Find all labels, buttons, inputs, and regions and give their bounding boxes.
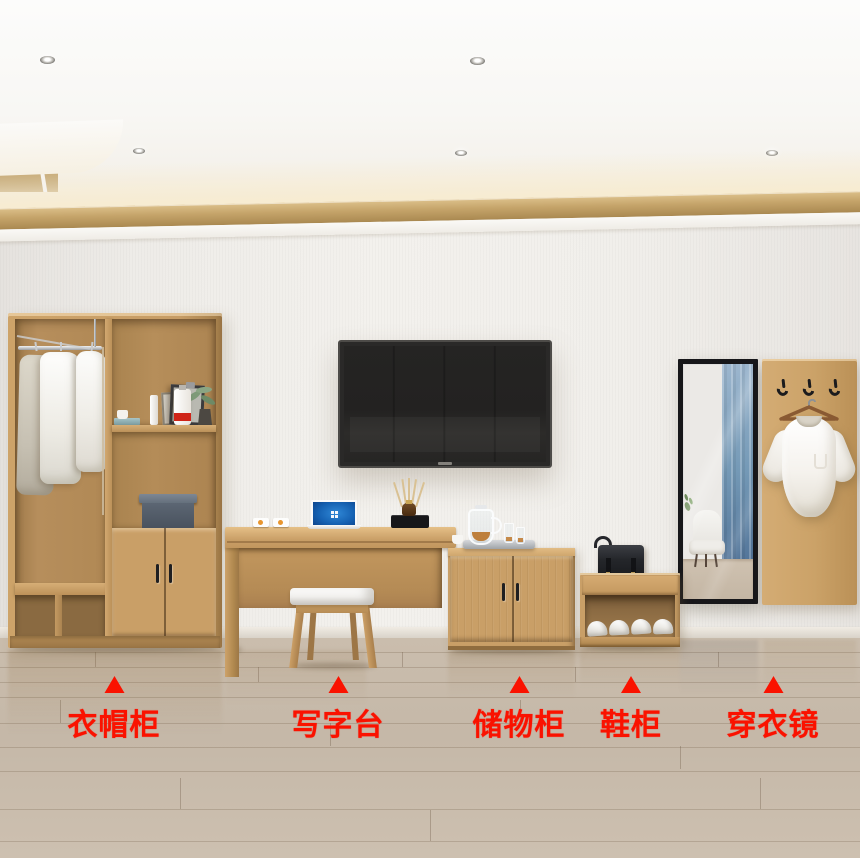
annotation-writing-desk: 写字台 xyxy=(292,676,385,744)
triangle-up-icon xyxy=(621,676,641,693)
desk-side-panel xyxy=(225,535,239,677)
annotation-wardrobe: 衣帽柜 xyxy=(68,676,161,744)
downlight-icon xyxy=(40,56,55,64)
teapot-lid xyxy=(475,505,487,509)
plank-seam xyxy=(575,667,576,682)
triangle-up-icon xyxy=(104,676,124,693)
storage-box xyxy=(142,503,194,528)
storage-box-lid xyxy=(139,494,197,503)
shoe-cabinet xyxy=(580,545,680,647)
tv-brand-logo xyxy=(438,462,452,465)
desk-top xyxy=(225,527,456,548)
furniture-set-photo: 衣帽柜 写字台 储物柜 鞋柜 穿衣镜 xyxy=(0,0,860,858)
stool xyxy=(287,588,379,668)
coat-hook-icon xyxy=(802,379,816,399)
laptop-screen xyxy=(311,500,357,527)
wardrobe-display-shelf xyxy=(112,319,216,425)
storage-cabinet-body xyxy=(448,548,575,650)
downlight-icon xyxy=(470,57,485,65)
wardrobe xyxy=(8,313,222,648)
door-handle xyxy=(169,564,172,583)
bottle-cap xyxy=(179,385,186,390)
glass-teapot xyxy=(468,505,500,545)
frame-clip xyxy=(186,382,195,388)
triangle-up-icon xyxy=(328,676,348,693)
door-handle xyxy=(156,564,159,583)
slipper xyxy=(609,619,630,635)
shoe-cabinet-body xyxy=(580,573,680,647)
shoe-cabinet-base xyxy=(580,637,680,647)
door-gap xyxy=(164,528,166,636)
label-dressing-mirror: 穿衣镜 xyxy=(727,700,820,744)
slipper xyxy=(586,620,607,637)
downlight-icon xyxy=(133,148,145,154)
hanging-blouse xyxy=(772,417,846,521)
windows-logo-icon xyxy=(331,511,334,514)
plank-seam xyxy=(180,778,181,809)
wardrobe-open-compartment xyxy=(112,432,216,528)
coaster xyxy=(273,518,289,527)
label-writing-desk: 写字台 xyxy=(292,700,385,744)
annotation-shoe-cabinet: 鞋柜 xyxy=(600,676,662,744)
coat-hook-icon xyxy=(828,379,842,399)
stool-apron xyxy=(296,605,368,613)
stool-leg xyxy=(289,605,305,668)
cabinet-top-surface xyxy=(448,548,575,556)
storage-cabinet xyxy=(448,505,575,650)
diffuser-bottle xyxy=(402,503,416,516)
door-handle xyxy=(516,583,519,601)
hanging-strap xyxy=(102,347,104,515)
plank-seam xyxy=(430,810,431,841)
hanger-hook-icon xyxy=(60,342,62,351)
dressing-mirror xyxy=(678,359,758,604)
label-storage-cabinet: 储物柜 xyxy=(473,700,566,744)
shoe-shelf xyxy=(585,595,675,637)
hanger-hook-icon xyxy=(34,342,37,351)
blouse-neckline xyxy=(796,416,822,427)
coat-hook-panel xyxy=(762,359,857,605)
slipper xyxy=(653,619,674,635)
triangle-up-icon xyxy=(763,676,783,693)
mirror-glare xyxy=(683,364,753,599)
slim-bottle xyxy=(150,395,158,425)
plank-seam xyxy=(680,746,681,769)
laptop-base xyxy=(307,525,361,529)
glass-cup xyxy=(504,523,514,543)
door-handle xyxy=(502,583,505,601)
coat-hook-icon xyxy=(776,379,790,399)
hook-curl xyxy=(827,382,843,398)
hanging-shirt xyxy=(40,352,81,484)
plant-leaf xyxy=(196,386,212,393)
shoe-cabinet-drawer xyxy=(582,576,678,595)
diffuser-base-box xyxy=(391,515,429,528)
door-gap xyxy=(512,556,514,642)
wardrobe-doors xyxy=(112,528,216,636)
tv-screen xyxy=(344,346,546,462)
glass-cup xyxy=(516,527,525,544)
annotation-dressing-mirror: 穿衣镜 xyxy=(727,676,820,744)
cubby-divider xyxy=(55,595,62,636)
slipper xyxy=(631,618,652,634)
teapot-handle xyxy=(491,517,502,534)
wall-mounted-tv xyxy=(338,340,552,468)
rail-support-rod xyxy=(94,319,96,347)
books-stack xyxy=(114,418,140,425)
tea-liquid xyxy=(518,538,523,542)
tea-liquid xyxy=(506,537,512,541)
plank-seam xyxy=(760,778,761,809)
stool-leg xyxy=(349,605,359,660)
coaster-dot xyxy=(258,520,263,525)
shelf-board xyxy=(112,425,216,432)
cabinet-base-line xyxy=(448,646,575,650)
wardrobe-bench xyxy=(15,583,105,595)
plant-vase xyxy=(198,409,212,425)
blouse-body xyxy=(782,417,836,517)
wardrobe-hanging-section xyxy=(15,319,105,636)
downlight-icon xyxy=(455,150,467,156)
wardrobe-plinth xyxy=(10,636,220,648)
triangle-up-icon xyxy=(509,676,529,693)
white-cup xyxy=(452,535,463,544)
stool-leg xyxy=(361,605,377,668)
coaster xyxy=(253,518,269,527)
bottle-red-label xyxy=(174,389,191,425)
wardrobe-cubbies xyxy=(15,595,105,636)
stool-cushion xyxy=(290,588,374,605)
annotation-storage-cabinet: 储物柜 xyxy=(473,676,566,744)
stool-leg xyxy=(307,605,317,660)
tea-liquid xyxy=(472,532,490,541)
small-cup xyxy=(117,410,128,419)
blouse-pocket xyxy=(814,454,827,469)
label-wardrobe: 衣帽柜 xyxy=(68,700,161,744)
wardrobe-divider-column xyxy=(105,319,112,636)
hook-curl xyxy=(801,382,817,398)
label-shoe-cabinet: 鞋柜 xyxy=(600,700,662,744)
cabinet-doors xyxy=(450,556,573,642)
bottle-label xyxy=(174,413,191,421)
wardrobe-shelf-section xyxy=(112,319,216,636)
diffuser-cap xyxy=(406,500,412,504)
coaster-dot xyxy=(278,520,283,525)
hook-curl xyxy=(775,382,791,398)
